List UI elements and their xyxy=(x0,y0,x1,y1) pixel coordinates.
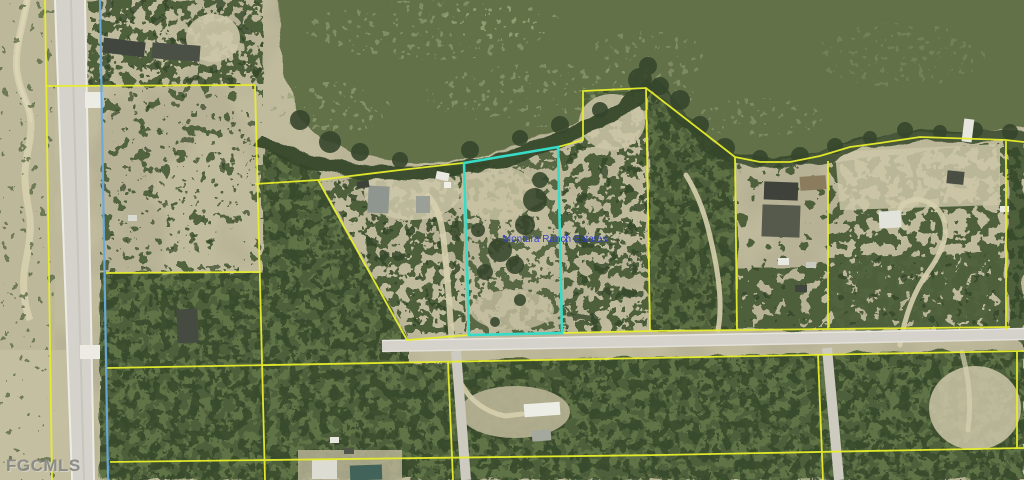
building-barn-e1 xyxy=(764,181,799,200)
vehicle xyxy=(778,258,789,265)
building-barn-nw2 xyxy=(152,42,201,61)
driveway-apron-s xyxy=(80,345,100,359)
log-pile xyxy=(800,175,827,191)
vehicle xyxy=(128,215,137,221)
building-farm-house xyxy=(367,185,389,213)
vehicle xyxy=(1000,206,1009,212)
parcel-name-label: Montura Ranch Estates xyxy=(503,234,608,245)
building-shed-south xyxy=(532,429,552,441)
se-clearing xyxy=(929,366,1021,450)
vehicle xyxy=(444,182,451,188)
vehicle xyxy=(344,448,354,454)
map-canvas: Montura Ranch Estates FGCMLS FGCMLS xyxy=(0,0,1024,480)
vehicle xyxy=(330,437,339,443)
driveway-apron-n xyxy=(85,92,103,108)
vehicle xyxy=(806,262,816,268)
building-sw-white xyxy=(312,460,337,479)
building-farm-shed xyxy=(416,196,430,213)
aerial-parcel-map[interactable]: Montura Ranch Estates FGCMLS FGCMLS xyxy=(0,0,1024,480)
watermark: FGCMLS xyxy=(6,456,81,475)
building-barn-e2 xyxy=(761,204,800,237)
building-shed-east xyxy=(946,170,964,185)
building-white-house xyxy=(879,210,902,228)
vehicle xyxy=(795,285,807,292)
building-trailer-west xyxy=(176,309,198,344)
building-mobile-home xyxy=(524,402,561,417)
building-sw-teal-roof xyxy=(350,464,383,480)
